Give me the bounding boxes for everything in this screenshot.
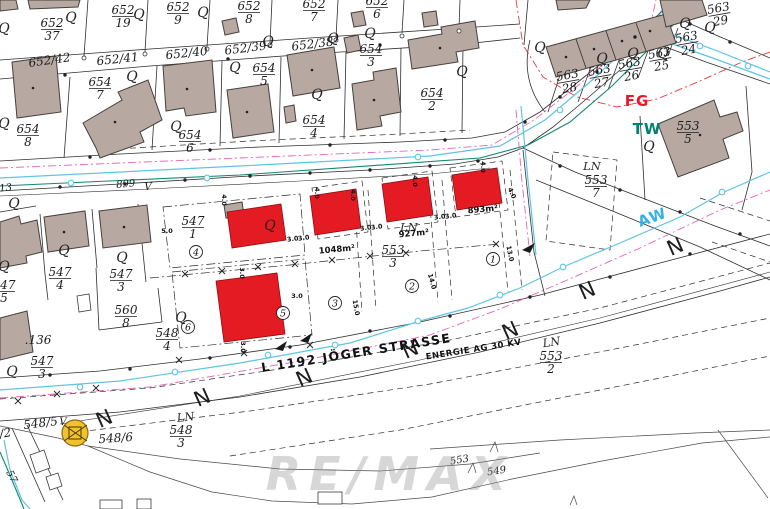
parcel-subnumber: 7 [96,88,104,102]
land-use-symbol: Q [116,250,128,266]
land-use-symbol: Q [58,243,70,259]
land-use-symbol: Q [175,310,187,326]
parcel-subnumber: 6 [186,141,194,155]
map-text-label: 13 [0,182,13,194]
parcel-label: 6548 [17,122,40,149]
map-text-label: /2 [0,425,12,441]
parcel-label: 5473 [31,354,54,381]
land-use-symbol: Q [126,69,138,85]
parcel-number: 652 [112,3,135,17]
land-use-symbol: Q [704,20,716,36]
dimension-label: 15.0 [351,299,362,317]
land-use-symbol: Q [264,218,276,234]
parcel-label: 6526 [366,0,389,21]
plot-number: 2 [406,280,419,293]
parcel-label: 6543 [360,42,383,69]
parcel-number: 652 [41,16,64,30]
parcel-subnumber: 3 [367,55,375,69]
dimension-label: 3.0 [370,222,383,232]
dimension-label: 3.0 [239,341,247,353]
dimension-label: 4.0 [220,194,228,206]
parcel-number: 553 [540,349,563,363]
parcel-subnumber: 8 [245,12,253,26]
parcel-subnumber: 37 [44,29,60,43]
parcel-number: 654 [303,113,326,127]
dimension-label: 4.0 [313,187,321,199]
parcel-subnumber: 5 [684,132,692,146]
parcel-subnumber: 4 [55,278,64,292]
plot-number: 1 [487,253,500,266]
parcel-subnumber: 19 [115,16,131,30]
plot-number: 3 [329,297,342,310]
dimension-label: 13.0 [504,245,515,263]
parcel-label: 65237 [41,16,64,43]
water-branch [521,106,536,255]
land-use-symbol: Q [679,16,691,32]
parcel-label: 5483 [170,423,193,450]
land-use-symbol: Q [534,40,546,56]
dimension-label: 4.0 [349,189,357,201]
parcel-number: 548 [170,423,193,437]
map-text-label: 899 [116,178,137,191]
parcel-number: 654 [89,75,112,89]
parcel-label: 6528 [238,0,261,26]
land-use-symbol: Q [197,5,209,21]
parcel-subnumber: 26 [622,68,641,85]
map-text-label: 927m² [398,228,429,241]
parcel-label: 6547 [89,75,112,102]
proposed-building-4 [227,204,286,248]
plot-number-text: 2 [408,282,415,293]
parcel-number: 548 [156,326,179,340]
land-use-symbol: Q [643,139,655,155]
parcel-label: 6529 [167,0,190,27]
parcel-subnumber: 4 [162,339,171,353]
land-use-symbol: Q [0,21,10,37]
dimension-label: 4.0 [479,161,487,173]
land-use-symbol: Q [8,196,20,212]
map-text-label: 652/42 [28,50,72,70]
parcel-label: 6542 [421,86,444,113]
parcel-label: 6544 [303,113,326,140]
parcel-subnumber: 5 [260,74,268,88]
plot-number-text: 5 [280,309,286,320]
plot-number-text: 3 [332,299,338,310]
parcel-number: 654 [421,86,444,100]
cadastral-map: 6523765219652965286527652665486547654665… [0,0,770,509]
parcel-subnumber: 7 [592,186,600,200]
plot-number-text: 4 [192,248,199,259]
land-use-symbol: Q [65,10,77,26]
parcel-subnumber: 8 [24,135,32,149]
parcel-subnumber: 8 [122,316,130,330]
map-text-label: 652/40 [165,44,209,62]
land-use-symbol: Q [627,46,639,62]
land-use-symbol: Q [456,64,468,80]
map-text-label: 893m² [467,204,498,217]
parcel-subnumber: 1 [189,227,197,241]
parcel-subnumber: 3 [38,367,46,381]
parcel-label: 5473 [110,267,133,294]
parcel-number: 553 [585,173,608,187]
proposed-building-2 [382,177,433,222]
parcel-number: 553 [677,119,700,133]
parcel-label: 65219 [112,3,135,30]
parcel-subnumber: 3 [117,280,125,294]
parcel-number: 547 [49,265,72,279]
parcel-number: 553 [382,243,405,257]
parcel-label: 5471 [182,214,205,241]
parcel-label: 6545 [253,61,276,88]
parcel-number: 652 [167,0,190,14]
parcel-number: 547 [110,267,133,281]
parcel-number: 654 [360,42,383,56]
map-text-label: TW [633,120,662,138]
dimension-label: 14.0 [426,273,438,291]
parcel-number: 547 [0,278,16,292]
watermark: RE/MAX [266,447,515,501]
parcel-subnumber: 27 [592,75,611,92]
proposed-buildings [216,168,502,342]
parcel-number: 654 [17,122,40,136]
parcel-label: 5537 [585,173,608,200]
dimension-label: 4.0 [411,175,419,187]
map-text-label: LN [582,159,602,173]
parcel-subnumber: 2 [427,99,436,113]
land-use-symbol: Q [596,51,608,67]
slope-symbol: N [190,383,214,411]
land-use-symbol: Q [327,31,339,47]
parcel-subnumber: 2 [546,362,555,376]
parcel-subnumber: 6 [373,7,381,21]
parcel-label: 5532 [540,349,563,376]
dimension-label: 5.0 [161,227,173,235]
parcel-number: 560 [115,303,138,317]
parcel-label: 5475 [0,278,16,305]
proposed-building-5 [216,273,285,342]
map-text-label: 652/39 [224,38,268,57]
map-text-label: LN [175,409,196,425]
map-text-label: 57 [3,469,19,486]
parcel-label: 5474 [49,265,72,292]
parcel-subnumber: 3 [177,436,185,450]
parcel-subnumber: 3 [389,256,397,270]
parcel-subnumber: 4 [309,126,318,140]
land-use-symbol: Q [229,60,241,76]
parcel-subnumber: 7 [310,10,318,24]
map-text-label: AW [635,204,669,231]
land-use-symbol: Q [170,119,182,135]
map-text-label: LN [541,334,562,351]
land-use-symbol: Q [262,34,274,50]
plot-number: 5 [277,307,290,320]
map-text-label: 1048m² [318,243,355,256]
land-use-symbol: Q [0,116,10,132]
land-use-symbol: Q [0,259,10,275]
parcel-label: 6527 [303,0,326,24]
dimension-label: 3.0 [444,211,457,221]
parcel-number: 654 [253,61,276,75]
map-text-label: L 1192 JÖGER STRASSE [260,330,452,375]
map-text-label: 548/5 [22,414,58,432]
parcel-subnumber: 24 [679,42,697,59]
parcel-label: 5533 [382,243,405,270]
parcel-number: 547 [31,354,54,368]
map-text-label: FG [625,92,650,110]
plot-number-text: 1 [490,255,496,266]
map-text-label: 652/41 [96,50,139,68]
parcel-number: 547 [182,214,205,228]
parcel-subnumber: 5 [0,291,8,305]
plot-number: 4 [190,246,203,259]
dimension-label: 4.0 [506,186,518,200]
slope-symbol: N [575,276,599,304]
slope-symbol: N [92,404,116,432]
land-use-symbol: Q [133,7,145,23]
map-text-label: 548/6 [98,430,134,446]
parcel-subnumber: 28 [560,80,579,97]
map-text-label: V [144,182,153,193]
land-use-symbol: Q [6,364,18,380]
land-use-symbol: Q [657,46,669,62]
dimension-label: 3.0 [297,233,310,243]
dimension-label: 3.0 [238,267,246,279]
parcel-label: 5484 [156,326,179,353]
map-text-label: .136 [25,333,52,347]
dimension-label: 3.0 [291,292,303,300]
land-use-symbol: Q [311,87,323,103]
parcel-number: 654 [179,128,202,142]
land-use-symbol: Q [364,26,376,42]
parcel-subnumber: 9 [174,13,182,27]
parcel-label: 5608 [115,303,138,330]
